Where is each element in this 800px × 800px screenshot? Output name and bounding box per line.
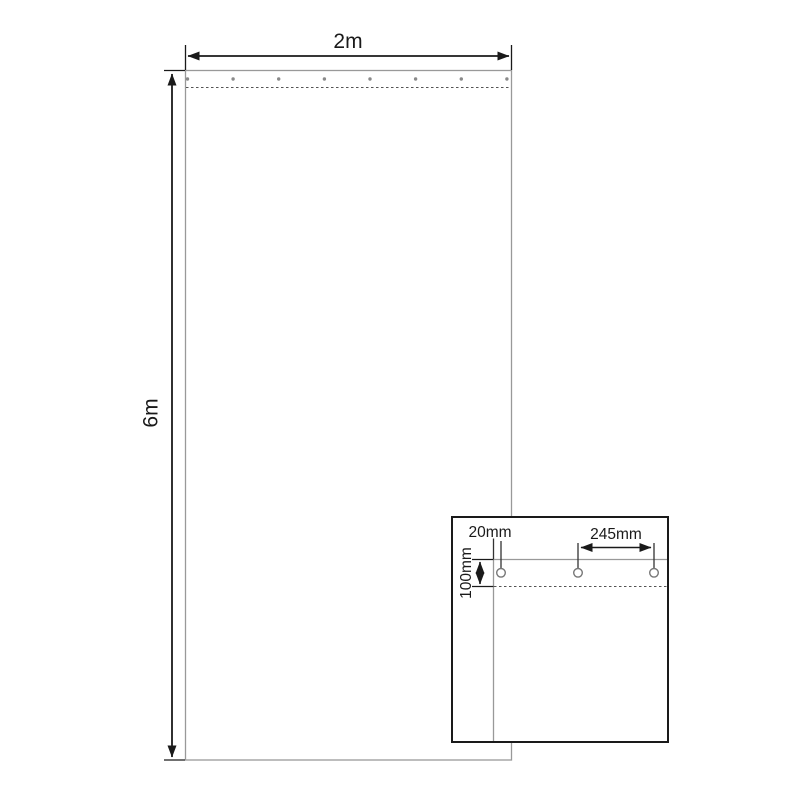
width-dimension-label: 2m [333, 30, 362, 53]
diagram-canvas: 2m 6m 20mm [0, 0, 800, 800]
eyelet-dot [368, 77, 371, 80]
eyelet-spacing-dimension-label: 245mm [590, 526, 642, 543]
eyelet-dot [277, 77, 280, 80]
eyelet-ring [650, 569, 659, 578]
hem-depth-dimension-label: 100mm [458, 547, 475, 599]
eyelet-ring [497, 569, 506, 578]
height-dimension-label: 6m [140, 398, 163, 427]
eyelet-dot [186, 77, 189, 80]
eyelet-dot [323, 77, 326, 80]
detail-inset-frame [452, 517, 668, 742]
edge-offset-dimension-label: 20mm [468, 524, 511, 541]
eyelet-dot [460, 77, 463, 80]
eyelet-dot [505, 77, 508, 80]
height-dimension: 6m [140, 71, 186, 761]
eyelet-dot [231, 77, 234, 80]
eyelet-dot [414, 77, 417, 80]
detail-inset-view: 20mm 245mm 100mm [452, 517, 668, 742]
width-dimension: 2m [186, 30, 512, 70]
eyelet-ring [574, 569, 583, 578]
dimension-drawing: 2m 6m 20mm [0, 0, 800, 800]
